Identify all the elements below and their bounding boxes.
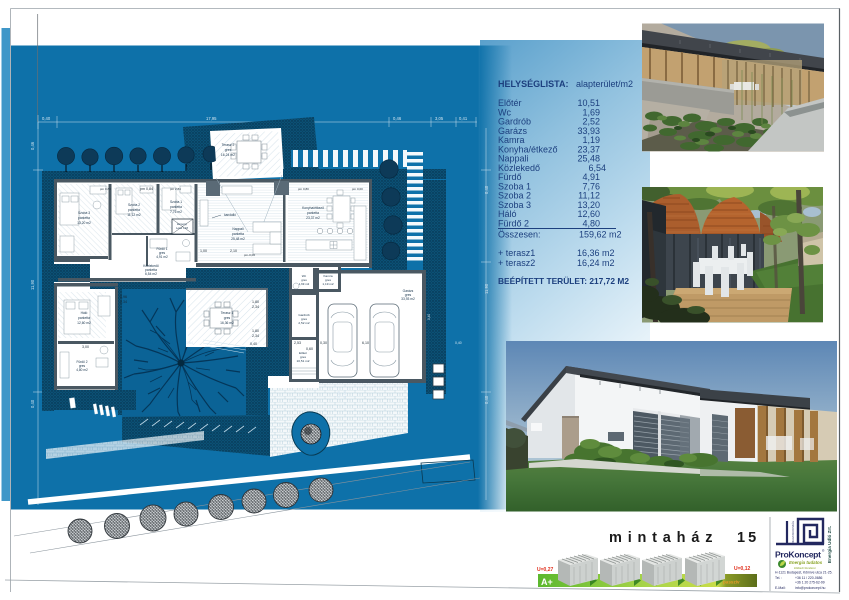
svg-text:6,54 m2: 6,54 m2 — [145, 272, 157, 276]
svg-text:16,36 m2: 16,36 m2 — [577, 248, 615, 258]
svg-text:Energia Udló Zrt.: Energia Udló Zrt. — [827, 526, 832, 563]
svg-text:10,51 m2: 10,51 m2 — [297, 359, 310, 363]
svg-text:0,40: 0,40 — [250, 342, 257, 346]
svg-text:2,34: 2,34 — [120, 300, 127, 304]
svg-text:25,48 m2: 25,48 m2 — [231, 237, 245, 241]
svg-text:A+: A+ — [541, 577, 553, 587]
svg-text:gres: gres — [225, 148, 232, 152]
svg-text:+36 1 20 275-62-99: +36 1 20 275-62-99 — [795, 581, 825, 585]
svg-text:Terasz 2: Terasz 2 — [222, 143, 235, 147]
svg-text:gres: gres — [224, 316, 231, 320]
svg-text:3,00: 3,00 — [82, 345, 89, 349]
svg-text:12,60 m2: 12,60 m2 — [77, 321, 91, 325]
svg-text:1,00: 1,00 — [200, 249, 207, 253]
svg-text:0,96: 0,96 — [120, 295, 127, 299]
svg-text:0,40: 0,40 — [427, 314, 431, 320]
svg-text:parketta: parketta — [78, 216, 90, 220]
svg-text:parketta: parketta — [232, 232, 244, 236]
svg-text:0,40: 0,40 — [30, 399, 35, 408]
svg-text:2,52 m2: 2,52 m2 — [298, 321, 309, 325]
svg-text:pm 0,80: pm 0,80 — [298, 187, 309, 191]
svg-text:4,80 m2: 4,80 m2 — [76, 368, 88, 372]
svg-text:pm 0,84: pm 0,84 — [140, 187, 153, 191]
svg-text:0,40: 0,40 — [42, 116, 51, 121]
svg-text:4,80: 4,80 — [582, 219, 600, 229]
svg-text:11,90: 11,90 — [484, 283, 489, 294]
svg-text:pm-0,06: pm-0,06 — [244, 253, 255, 257]
svg-text:pm 0,84: pm 0,84 — [100, 187, 111, 191]
svg-text:Loter L18: Loter L18 — [176, 226, 188, 230]
svg-text:1,80: 1,80 — [252, 329, 259, 333]
svg-text:Szoba 1: Szoba 1 — [170, 200, 182, 204]
svg-text:0,40: 0,40 — [455, 341, 462, 345]
svg-text:159,62 m2: 159,62 m2 — [579, 230, 622, 240]
svg-text:Terasz 1: Terasz 1 — [221, 311, 234, 315]
svg-text:MAGYARORSZÁG: MAGYARORSZÁG — [791, 521, 795, 543]
svg-text:0,60: 0,60 — [306, 347, 313, 351]
svg-text:23,37 m2: 23,37 m2 — [306, 216, 320, 220]
svg-text:2,53: 2,53 — [294, 341, 301, 345]
svg-text:parketta: parketta — [170, 205, 182, 209]
svg-text:kandalló: kandalló — [224, 213, 236, 217]
svg-text:16,24 m2: 16,24 m2 — [577, 258, 615, 268]
svg-text:33,93 m2: 33,93 m2 — [401, 297, 415, 301]
svg-text:Tel. :: Tel. : — [775, 576, 782, 580]
svg-text:5,09: 5,09 — [337, 391, 341, 398]
svg-text:pm 0,00: pm 0,00 — [352, 187, 363, 191]
svg-text:Nappali: Nappali — [232, 227, 243, 231]
svg-text:1,80: 1,80 — [252, 300, 259, 304]
svg-text:0,46: 0,46 — [393, 116, 402, 121]
svg-text:11,90: 11,90 — [30, 279, 35, 290]
svg-text:passzív: passzív — [723, 580, 740, 585]
svg-text:2,34: 2,34 — [252, 305, 259, 309]
svg-text:0,30: 0,30 — [320, 341, 327, 345]
svg-text:6,10: 6,10 — [362, 341, 369, 345]
svg-text:parketta: parketta — [78, 316, 90, 320]
svg-text:info@prokoncept.hu: info@prokoncept.hu — [795, 586, 826, 590]
svg-text:2,34: 2,34 — [252, 334, 259, 338]
svg-text:3,05: 3,05 — [435, 116, 444, 121]
svg-text:1,19 m2: 1,19 m2 — [322, 282, 333, 286]
svg-text:mintaház: mintaház — [609, 530, 718, 546]
svg-text:E-Mail:: E-Mail: — [775, 586, 786, 590]
svg-text:2,10: 2,10 — [230, 249, 237, 253]
svg-text:2,04: 2,04 — [343, 391, 347, 398]
svg-text:15: 15 — [737, 530, 759, 546]
svg-text:0,40: 0,40 — [484, 395, 489, 404]
svg-text:U=0,27: U=0,27 — [537, 567, 553, 573]
svg-text:0,46: 0,46 — [30, 141, 35, 150]
svg-text:17,95: 17,95 — [206, 116, 217, 121]
svg-text:16,24 m2: 16,24 m2 — [221, 153, 235, 157]
svg-text:Energia tudatos: Energia tudatos — [789, 560, 823, 565]
svg-text:7,76 m2: 7,76 m2 — [170, 210, 182, 214]
svg-text:11,12 m2: 11,12 m2 — [127, 213, 141, 217]
svg-text:+ terasz1: + terasz1 — [498, 248, 535, 258]
svg-text:ProKoncept: ProKoncept — [775, 550, 821, 560]
svg-text:H-1121 Budapest, Kőmíve utca 2: H-1121 Budapest, Kőmíve utca 21-25. — [775, 571, 832, 575]
svg-text:Konyha/étkező: Konyha/étkező — [302, 206, 324, 210]
svg-text:U=0,12: U=0,12 — [734, 566, 750, 572]
svg-text:Fürdő 2: Fürdő 2 — [498, 219, 529, 229]
svg-text:+ terasz2: + terasz2 — [498, 258, 535, 268]
svg-text:parketta: parketta — [307, 211, 319, 215]
svg-text:+36 11 / 220-0686: +36 11 / 220-0686 — [795, 576, 822, 580]
svg-text:pm 2,84: pm 2,84 — [170, 187, 181, 191]
svg-text:13,20 m2: 13,20 m2 — [77, 221, 91, 225]
svg-text:0,41: 0,41 — [459, 116, 468, 121]
svg-text:0,40: 0,40 — [484, 185, 489, 194]
svg-text:alapterület/m2: alapterület/m2 — [576, 79, 633, 89]
svg-text:Zöldtech Rendszer: Zöldtech Rendszer — [794, 566, 816, 570]
svg-text:parketta: parketta — [128, 208, 140, 212]
svg-text:BEÉPÍTETT TERÜLET: 217,72 M2: BEÉPÍTETT TERÜLET: 217,72 M2 — [498, 275, 629, 286]
svg-text:Szoba 2: Szoba 2 — [128, 203, 140, 207]
svg-text:Háló: Háló — [81, 311, 88, 315]
svg-text:1,64: 1,64 — [186, 341, 193, 345]
svg-text:Összesen:: Összesen: — [498, 230, 541, 240]
svg-text:HELYSÉGLISTA:: HELYSÉGLISTA: — [498, 79, 569, 89]
svg-text:1,69 m2: 1,69 m2 — [299, 282, 310, 286]
svg-text:4,91 m2: 4,91 m2 — [156, 255, 168, 259]
svg-text:Szoba 3: Szoba 3 — [78, 211, 90, 215]
svg-text:16,36 m2: 16,36 m2 — [220, 321, 234, 325]
